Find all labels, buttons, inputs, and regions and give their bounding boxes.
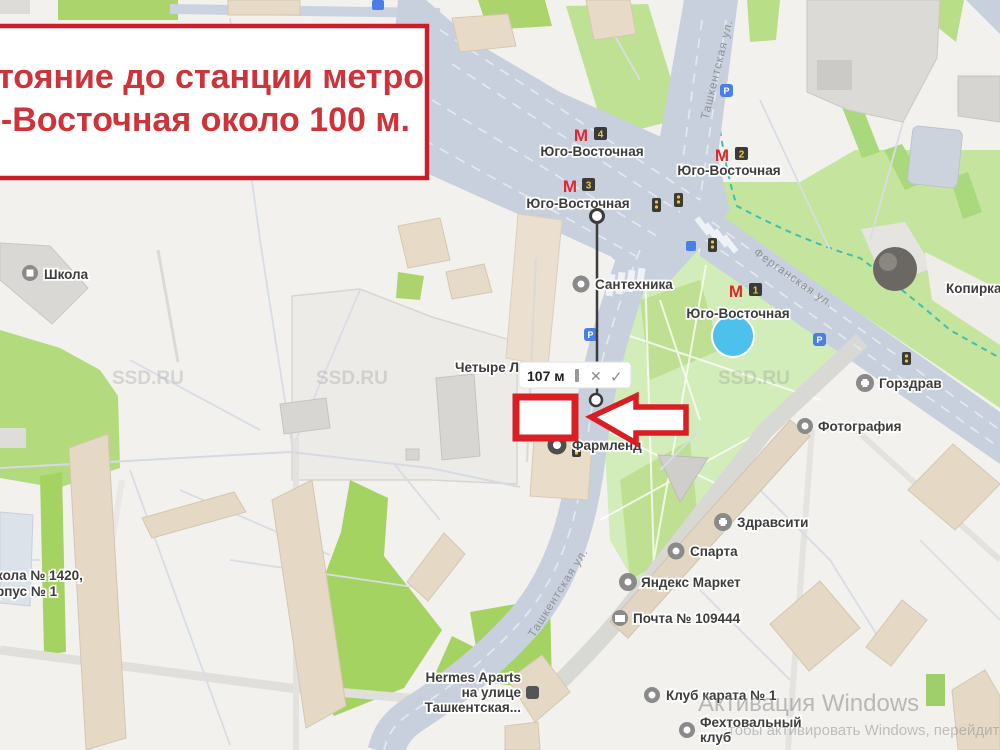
svg-text:рпус № 1: рпус № 1 xyxy=(0,584,58,599)
svg-text:Ташкентская...: Ташкентская... xyxy=(425,700,521,715)
svg-text:Копирка: Копирка xyxy=(946,281,1000,296)
svg-text:кола № 1420,: кола № 1420, xyxy=(0,568,83,583)
svg-text:Школа: Школа xyxy=(44,267,89,282)
svg-text:✓: ✓ xyxy=(610,369,623,386)
svg-text:SSD.RU: SSD.RU xyxy=(112,368,184,389)
svg-text:SSD.RU: SSD.RU xyxy=(718,368,790,389)
svg-text:Спарта: Спарта xyxy=(690,544,738,559)
svg-text:SSD.RU: SSD.RU xyxy=(316,368,388,389)
svg-text:М: М xyxy=(574,126,588,145)
svg-text:Юго-Восточная: Юго-Восточная xyxy=(526,196,629,211)
svg-text:4: 4 xyxy=(598,130,604,141)
svg-text:2: 2 xyxy=(739,150,745,161)
svg-text:✕: ✕ xyxy=(590,368,602,384)
svg-text:Юго-Восточная: Юго-Восточная xyxy=(686,306,789,321)
svg-text:Юго-Восточная: Юго-Восточная xyxy=(677,163,780,178)
svg-text:М: М xyxy=(563,177,577,196)
svg-text:Четыре Л: Четыре Л xyxy=(455,360,519,375)
svg-text:Сантехника: Сантехника xyxy=(595,277,673,292)
svg-text:107 м: 107 м xyxy=(527,368,565,384)
svg-text:Яндекс Маркет: Яндекс Маркет xyxy=(641,575,741,590)
svg-text:Почта № 109444: Почта № 109444 xyxy=(633,611,741,626)
svg-text:P: P xyxy=(816,335,822,345)
svg-text:Расстояние до станции метро: Расстояние до станции метро xyxy=(0,58,424,96)
svg-text:М: М xyxy=(729,282,743,301)
svg-text:P: P xyxy=(723,86,729,96)
svg-text:тобы активировать Windows, пер: тобы активировать Windows, перейдите xyxy=(728,722,1000,739)
svg-text:Юго-Восточная около 100 м.: Юго-Восточная около 100 м. xyxy=(0,101,410,139)
svg-text:Здравсити: Здравсити xyxy=(737,515,808,530)
svg-text:P: P xyxy=(587,330,593,340)
svg-text:3: 3 xyxy=(586,181,592,192)
svg-text:Юго-Восточная: Юго-Восточная xyxy=(540,144,643,159)
svg-text:Горздрав: Горздрав xyxy=(879,376,942,391)
svg-text:Фотография: Фотография xyxy=(818,419,901,434)
svg-text:на улице: на улице xyxy=(462,685,522,700)
svg-text:Активация Windows: Активация Windows xyxy=(698,690,919,717)
svg-text:1: 1 xyxy=(753,286,759,297)
svg-text:клуб: клуб xyxy=(700,730,731,745)
svg-text:Hermes Aparts: Hermes Aparts xyxy=(425,670,521,685)
